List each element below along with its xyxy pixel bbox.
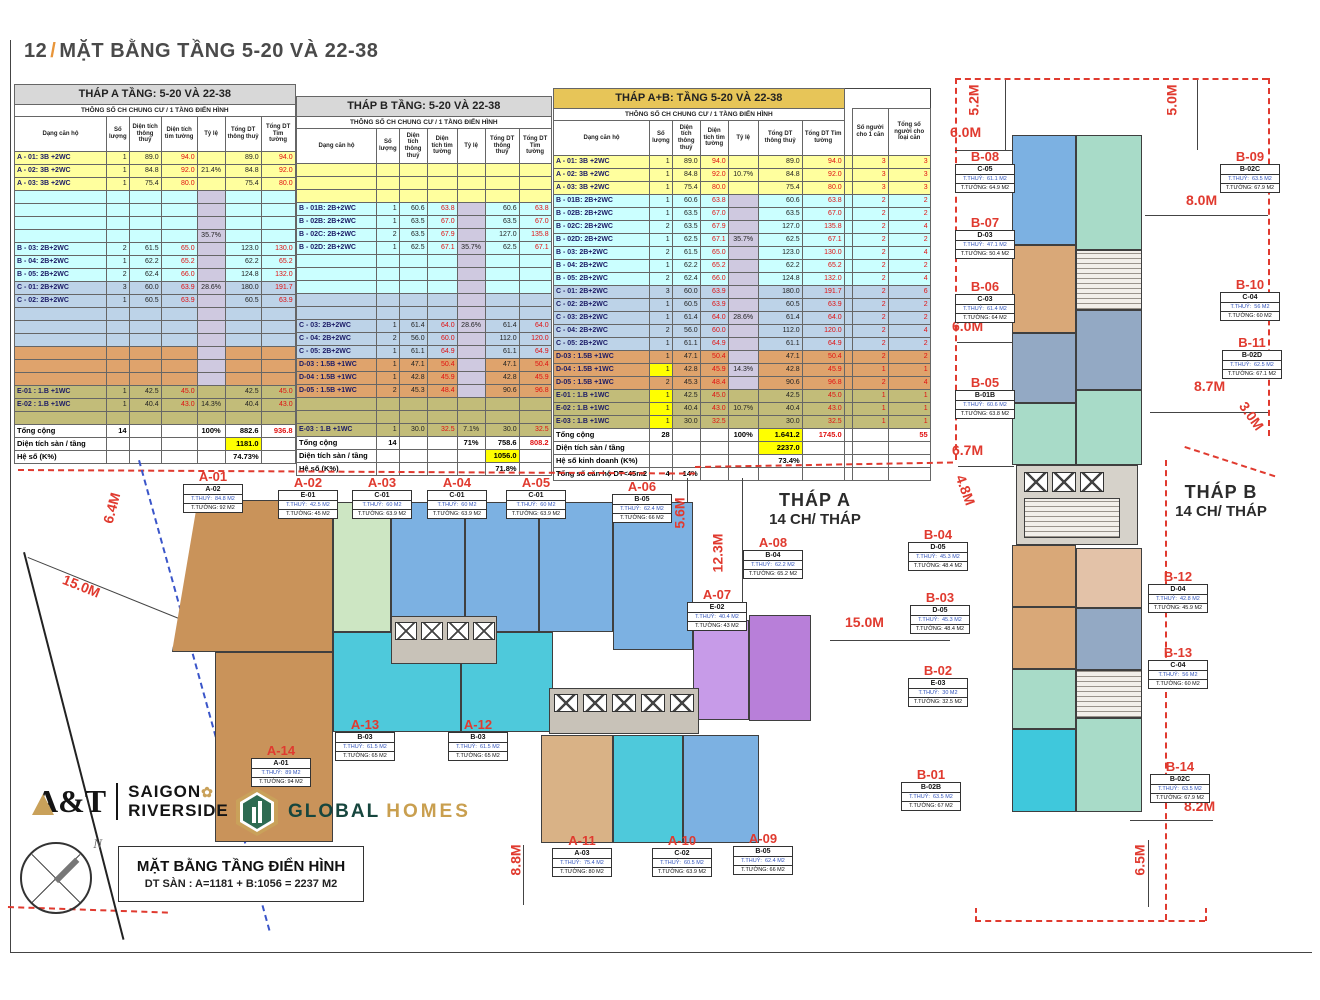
unit-type-code: B-03 [336,733,394,743]
unit-info-box: C-04 T.THUỶ: 56 M2 T.TƯỜNG: 60 M2 [1148,660,1208,689]
unit-label-A-02: A-02 E-01 T.THUỶ: 42.5 M2 T.TƯỜNG: 45 M2 [278,476,338,519]
table-row: D-05 : 1.5B +1WC245.348.490.696.824 [554,377,931,390]
unit-id: B-13 [1148,646,1208,659]
unit-label-B-03: B-03 D-05 T.THUỶ: 45.3 M2 T.TƯỜNG: 48.4 … [910,591,970,634]
column-header: Tỷ lệ [197,117,225,152]
apartment-unit-block [1012,403,1076,465]
unit-type-code: B-05 [734,847,792,857]
unit-label-B-02: B-02 E-03 T.THUỶ: 30 M2 T.TƯỜNG: 32.5 M2 [908,664,968,707]
table-title: THÁP B TẦNG: 5-20 VÀ 22-38 [297,97,552,117]
unit-info-box: C-01 T.THUỶ: 60 M2 T.TƯỜNG: 63.9 M2 [506,490,566,519]
table-row: Tổng cộng1471%758.6808.2 [297,437,552,450]
compass-needle [54,858,79,883]
table-row: C - 04: 2B+2WC256.060.0112.0120.024 [554,325,931,338]
column-header: Dạng căn hộ [554,121,650,156]
global-homes-wordmark: GLOBALHOMES [288,801,471,823]
unit-gross-area: T.TƯỜNG: 66 M2 [613,514,671,522]
table-row: Tổng cộng14100%882.6936.8 [15,425,296,438]
tower-a-label: THÁP A 14 CH/ THÁP [745,490,885,528]
table-row: B - 05: 2B+2WC262.466.0124.8132.024 [554,273,931,286]
elevator-shaft [473,622,495,640]
unit-net-area: T.THUỶ: 62.4 M2 [734,857,792,866]
unit-label-A-13: A-13 B-03 T.THUỶ: 61.5 M2 T.TƯỜNG: 65 M2 [335,718,395,761]
unit-info-box: A-01 T.THUỶ: 89 M2 T.TƯỜNG: 94 M2 [251,758,311,787]
unit-info-box: D-05 T.THUỶ: 45.3 M2 T.TƯỜNG: 48.4 M2 [908,542,968,571]
apartment-unit-block [1076,390,1142,465]
apartment-unit-block [1012,135,1076,245]
dimension-label: 6.5M [1132,844,1148,875]
elevator-shaft [583,694,607,712]
dimension-line [1005,80,1006,150]
table-row: C - 03: 2B+2WC161.464.028.6%61.464.022 [554,312,931,325]
table-row: Diện tích sàn / tầng1056.0 [297,450,552,463]
unit-id: A-04 [427,476,487,489]
apartment-unit-block [1076,310,1142,390]
unit-net-area: T.THUỶ: 60 M2 [428,501,486,510]
unit-label-A-06: A-06 B-05 T.THUỶ: 62.4 M2 T.TƯỜNG: 66 M2 [612,480,672,523]
apartment-unit-block [465,502,539,632]
column-header: Tổng DT Tim tường [802,121,844,156]
unit-gross-area: T.TƯỜNG: 65.2 M2 [744,570,802,578]
unit-net-area: T.THUỶ: 45.3 M2 [911,616,969,625]
table-row [15,373,296,386]
table-row [15,412,296,425]
unit-info-box: B-03 T.THUỶ: 61.5 M2 T.TƯỜNG: 65 M2 [448,732,508,761]
column-header: Diện tích tim tường [700,121,728,156]
stair-core [1076,250,1142,310]
unit-gross-area: T.TƯỜNG: 63.9 M2 [653,868,711,876]
unit-net-area: T.THUỶ: 56 M2 [1221,303,1279,312]
table-row: A - 01: 3B +2WC189.094.089.094.033 [554,156,931,169]
unit-label-B-08: B-08 C-05 T.THUỶ: 61.1 M2 T.TƯỜNG: 64.9 … [955,150,1015,193]
unit-id: A-10 [652,834,712,847]
unit-gross-area: T.TƯỜNG: 66 M2 [734,866,792,874]
unit-type-code: B-02C [1151,775,1209,785]
apartment-unit-block [1012,245,1076,333]
unit-net-area: T.THUỶ: 62.2 M2 [744,561,802,570]
saigon-riverside-wordmark: SAIGON✿ RIVERSIDE [116,783,229,820]
unit-gross-area: T.TƯỜNG: 65 M2 [336,752,394,760]
column-header: Số người cho 1 căn [852,109,888,156]
table-row [297,255,552,268]
unit-net-area: T.THUỶ: 62.4 M2 [613,505,671,514]
north-label: N [93,836,102,852]
page-number: 12 [24,40,47,62]
unit-id: A-12 [448,718,508,731]
table-row [297,294,552,307]
dimension-line [1145,215,1268,216]
unit-net-area: T.THUỶ: 61.5 M2 [336,743,394,752]
dimension-label: 15.0M [60,571,102,600]
apartment-unit-block [1076,608,1142,670]
unit-type-code: C-01 [353,491,411,501]
unit-gross-area: T.TƯỜNG: 67 M2 [902,802,960,810]
data-table: THÁP A TẦNG: 5-20 VÀ 22-38THÔNG SỐ CH CH… [14,84,296,464]
data-table: THÁP A+B: TẦNG 5-20 VÀ 22-38THÔNG SỐ CH … [553,88,931,481]
column-header: Số lượng [107,117,130,152]
apartment-unit-block [1076,135,1142,250]
table-row: D-05 : 1.5B +1WC245.348.490.696.8 [297,385,552,398]
column-header: Tổng DT thông thuỷ [758,121,802,156]
unit-net-area: T.THUỶ: 63.5 M2 [1151,785,1209,794]
unit-net-area: T.THUỶ: 89 M2 [252,769,310,778]
table-row: B - 02D: 2B+2WC162.567.135.7%62.567.122 [554,234,931,247]
unit-info-box: B-01B T.THUỶ: 60.6 M2 T.TƯỜNG: 63.8 M2 [955,390,1015,419]
unit-net-area: T.THUỶ: 63.5 M2 [902,793,960,802]
unit-gross-area: T.TƯỜNG: 67.1 M2 [1223,370,1281,378]
unit-gross-area: T.TƯỜNG: 45 M2 [279,510,337,518]
apartment-unit-block [613,735,683,843]
apartment-unit-block [749,615,811,721]
table-row [297,190,552,203]
unit-info-box: B-05 T.THUỶ: 62.4 M2 T.TƯỜNG: 66 M2 [612,494,672,523]
unit-label-A-14: A-14 A-01 T.THUỶ: 89 M2 T.TƯỜNG: 94 M2 [251,744,311,787]
unit-type-code: A-02 [184,485,242,495]
table-row: B - 01B: 2B+2WC160.663.860.663.8 [297,203,552,216]
site-boundary [1165,460,1167,920]
page-title: 12/MẶT BẰNG TẦNG 5-20 VÀ 22-38 [24,40,378,63]
table-row [297,268,552,281]
apartment-unit-block [1012,333,1076,403]
unit-id: B-14 [1150,760,1210,773]
tower-b-label: THÁP B 14 CH/ THÁP [1146,482,1296,520]
unit-label-B-04: B-04 D-05 T.THUỶ: 45.3 M2 T.TƯỜNG: 48.4 … [908,528,968,571]
slash-mark: / [50,40,56,62]
table-row: C - 02: 2B+2WC160.563.960.563.9 [15,295,296,308]
unit-gross-area: T.TƯỜNG: 63.9 M2 [353,510,411,518]
unit-gross-area: T.TƯỜNG: 63.9 M2 [428,510,486,518]
column-header: Tổng DT Tim tường [261,117,295,152]
unit-id: A-08 [743,536,803,549]
at-logo-mark: A&T [35,783,106,820]
column-header: Dạng căn hộ [297,129,377,164]
hexagon-building-icon [236,788,278,836]
column-header: Tỷ lệ [728,121,758,156]
table-row [297,177,552,190]
dimension-label: 15.0M [845,614,884,630]
dimension-label: 6.7M [952,442,983,458]
table-row: 35.7% [15,230,296,243]
site-boundary [955,78,1268,80]
dimension-line [1130,820,1213,821]
unit-info-box: E-02 T.THUỶ: 40.4 M2 T.TƯỜNG: 43 M2 [687,602,747,631]
table-row [15,360,296,373]
unit-net-area: T.THUỶ: 62.5 M2 [1223,361,1281,370]
column-header: Dạng căn hộ [15,117,107,152]
unit-type-code: C-05 [956,165,1014,175]
apartment-unit-block [693,620,749,720]
table-row: E-01 : 1.B +1WC142.545.042.545.011 [554,390,931,403]
unit-gross-area: T.TƯỜNG: 63.9 M2 [507,510,565,518]
unit-info-box: A-03 T.THUỶ: 75.4 M2 T.TƯỜNG: 80 M2 [552,848,612,877]
table-row [297,398,552,411]
unit-label-B-13: B-13 C-04 T.THUỶ: 56 M2 T.TƯỜNG: 60 M2 [1148,646,1208,689]
unit-net-area: T.THUỶ: 75.4 M2 [553,859,611,868]
elevator-shaft [421,622,443,640]
unit-type-code: E-02 [688,603,746,613]
column-header: Tổng số người cho loại căn [888,109,930,156]
column-header: Diện tích thông thuỷ [399,129,427,164]
unit-info-box: D-05 T.THUỶ: 45.3 M2 T.TƯỜNG: 48.4 M2 [910,605,970,634]
unit-net-area: T.THUỶ: 60.5 M2 [653,859,711,868]
unit-gross-area: T.TƯỜNG: 80 M2 [553,868,611,876]
unit-gross-area: T.TƯỜNG: 63.8 M2 [956,410,1014,418]
unit-type-code: B-02D [1223,351,1281,361]
title-block-heading: MẶT BẰNG TẦNG ĐIỂN HÌNH [137,858,345,875]
table-subtitle: THÔNG SỐ CH CHUNG CƯ / 1 TẦNG ĐIỂN HÌNH [15,105,296,117]
unit-gross-area: T.TƯỜNG: 48.4 M2 [911,625,969,633]
table-row: D-04 : 1.5B +1WC142.845.914.3%42.845.911 [554,364,931,377]
table-row: B - 02D: 2B+2WC162.567.135.7%62.567.1 [297,242,552,255]
unit-gross-area: T.TƯỜNG: 60 M2 [1221,312,1279,320]
unit-info-box: D-03 T.THUỶ: 47.1 M2 T.TƯỜNG: 50.4 M2 [955,230,1015,259]
unit-id: B-10 [1220,278,1280,291]
table-row: B - 02B: 2B+2WC163.567.063.567.022 [554,208,931,221]
table-row [297,281,552,294]
column-header: Tổng DT thông thuỷ [225,117,261,152]
elevator-shaft [554,694,578,712]
unit-net-area: T.THUỶ: 42.8 M2 [1149,595,1207,604]
unit-label-A-05: A-05 C-01 T.THUỶ: 60 M2 T.TƯỜNG: 63.9 M2 [506,476,566,519]
unit-gross-area: T.TƯỜNG: 32.5 M2 [909,698,967,706]
elevator-shaft [447,622,469,640]
unit-info-box: C-04 T.THUỶ: 56 M2 T.TƯỜNG: 60 M2 [1220,292,1280,321]
table-row: B - 04: 2B+2WC162.265.262.265.222 [554,260,931,273]
unit-type-code: C-04 [1221,293,1279,303]
unit-id: B-06 [955,280,1015,293]
gold-triangle-icon [32,794,54,815]
table-row: B - 03: 2B+2WC261.565.0123.0130.0 [15,243,296,256]
unit-type-code: E-01 [279,491,337,501]
table-row: E-03 : 1.B +1WC130.032.57.1%30.032.5 [297,424,552,437]
table-subtitle: THÔNG SỐ CH CHUNG CƯ / 1 TẦNG ĐIỂN HÌNH [554,109,845,121]
dimension-label: 6.4M [100,491,124,525]
dimension-label: 12.3M [709,534,725,573]
unit-info-box: B-02B T.THUỶ: 63.5 M2 T.TƯỜNG: 67 M2 [901,782,961,811]
unit-label-A-10: A-10 C-02 T.THUỶ: 60.5 M2 T.TƯỜNG: 63.9 … [652,834,712,877]
unit-info-box: C-03 T.THUỶ: 61.4 M2 T.TƯỜNG: 64 M2 [955,294,1015,323]
unit-gross-area: T.TƯỜNG: 43 M2 [688,622,746,630]
unit-label-A-11: A-11 A-03 T.THUỶ: 75.4 M2 T.TƯỜNG: 80 M2 [552,834,612,877]
table-row: C - 01: 2B+2WC360.063.928.6%180.0191.7 [15,282,296,295]
table-row: E-03 : 1.B +1WC130.032.530.032.511 [554,416,931,429]
unit-gross-area: T.TƯỜNG: 64.9 M2 [956,184,1014,192]
stair-core [1024,498,1120,538]
dimension-label: 5.0M [1164,84,1180,115]
table-row: B - 05: 2B+2WC262.466.0124.8132.0 [15,269,296,282]
unit-id: A-13 [335,718,395,731]
unit-net-area: T.THUỶ: 61.5 M2 [449,743,507,752]
table-row [15,347,296,360]
site-boundary [1268,78,1270,436]
table-row: Diện tích sàn / tầng1181.0 [15,438,296,451]
unit-label-B-09: B-09 B-02C T.THUỶ: 63.5 M2 T.TƯỜNG: 67.9… [1220,150,1280,193]
table-row: A - 02: 3B +2WC184.892.010.7%84.892.033 [554,169,931,182]
sheet-border-bottom [10,952,1312,953]
table-row: D-03 : 1.5B +1WC147.150.447.150.4 [297,359,552,372]
apartment-unit-block [539,502,613,632]
unit-type-code: D-04 [1149,585,1207,595]
unit-info-box: B-05 T.THUỶ: 62.4 M2 T.TƯỜNG: 66 M2 [733,846,793,875]
dimension-label: 8.7M [1194,378,1225,394]
table-row: B - 02C: 2B+2WC263.567.9127.0135.8 [297,229,552,242]
dimension-label: 8.0M [1186,192,1217,208]
unit-gross-area: T.TƯỜNG: 48.4 M2 [909,562,967,570]
table-row: C - 02: 2B+2WC160.563.960.563.922 [554,299,931,312]
dimension-label: 4.8M [953,473,979,508]
unit-id: B-09 [1220,150,1280,163]
column-header: Tổng DT thông thuỷ [485,129,519,164]
elevator-shaft [1052,472,1076,492]
table-row [297,307,552,320]
unit-label-A-04: A-04 C-01 T.THUỶ: 60 M2 T.TƯỜNG: 63.9 M2 [427,476,487,519]
table-row: C - 05: 2B+2WC161.164.961.164.922 [554,338,931,351]
site-boundary [1205,908,1207,921]
unit-net-area: T.THUỶ: 61.1 M2 [956,175,1014,184]
apartment-unit-block [1012,607,1076,669]
elevator-shaft [1080,472,1104,492]
apartment-unit-block [1012,545,1076,607]
title-block-area: DT SÀN : A=1181 + B:1056 = 2237 M2 [145,878,338,890]
dimension-label: 5.2M [966,84,982,115]
unit-net-area: T.THUỶ: 60 M2 [353,501,411,510]
unit-id: B-07 [955,216,1015,229]
elevator-shaft [1024,472,1048,492]
unit-info-box: B-02C T.THUỶ: 63.5 M2 T.TƯỜNG: 67.9 M2 [1220,164,1280,193]
unit-id: A-03 [352,476,412,489]
unit-info-box: B-03 T.THUỶ: 61.5 M2 T.TƯỜNG: 65 M2 [335,732,395,761]
unit-label-B-11: B-11 B-02D T.THUỶ: 62.5 M2 T.TƯỜNG: 67.1… [1222,336,1282,379]
unit-net-area: T.THUỶ: 60 M2 [507,501,565,510]
unit-type-code: B-04 [744,551,802,561]
unit-type-code: A-03 [553,849,611,859]
unit-info-box: B-02C T.THUỶ: 63.5 M2 T.TƯỜNG: 67.9 M2 [1150,774,1210,803]
apartment-unit-block [333,502,391,632]
table-row [15,334,296,347]
column-header: Diện tích tim tường [427,129,457,164]
at-saigon-riverside-logo: A&T SAIGON✿ RIVERSIDE [35,783,229,820]
unit-type-code: D-03 [956,231,1014,241]
table-row: C - 03: 2B+2WC161.464.028.6%61.464.0 [297,320,552,333]
unit-type-code: C-03 [956,295,1014,305]
flower-icon: ✿ [201,784,214,800]
column-header: Số lượng [377,129,400,164]
unit-id: A-09 [733,832,793,845]
dimension-label: 3.0M [1236,399,1267,434]
table-row: B - 04: 2B+2WC162.265.262.265.2 [15,256,296,269]
apartment-unit-block [541,735,613,843]
table-row: C - 01: 2B+2WC360.063.9180.0191.726 [554,286,931,299]
unit-label-B-12: B-12 D-04 T.THUỶ: 42.8 M2 T.TƯỜNG: 45.9 … [1148,570,1208,613]
table-title: THÁP A TẦNG: 5-20 VÀ 22-38 [15,85,296,105]
unit-label-B-06: B-06 C-03 T.THUỶ: 61.4 M2 T.TƯỜNG: 64 M2 [955,280,1015,323]
north-compass-icon: N [20,842,92,914]
unit-net-area: T.THUỶ: 84.8 M2 [184,495,242,504]
unit-label-A-09: A-09 B-05 T.THUỶ: 62.4 M2 T.TƯỜNG: 66 M2 [733,832,793,875]
unit-type-code: B-01B [956,391,1014,401]
unit-type-code: C-01 [507,491,565,501]
unit-info-box: C-05 T.THUỶ: 61.1 M2 T.TƯỜNG: 64.9 M2 [955,164,1015,193]
unit-id: A-02 [278,476,338,489]
drawing-sheet: 12/MẶT BẰNG TẦNG 5-20 VÀ 22-38 THÁP A TẦ… [0,0,1320,1000]
unit-type-code: B-05 [613,495,671,505]
unit-net-area: T.THUỶ: 56 M2 [1149,671,1207,680]
unit-info-box: D-04 T.THUỶ: 42.8 M2 T.TƯỜNG: 45.9 M2 [1148,584,1208,613]
unit-id: A-14 [251,744,311,757]
table-row: D-04 : 1.5B +1WC142.845.942.845.9 [297,372,552,385]
apartment-unit-block [683,735,759,843]
table-row: C - 05: 2B+2WC161.164.961.164.9 [297,346,552,359]
unit-label-B-01: B-01 B-02B T.THUỶ: 63.5 M2 T.TƯỜNG: 67 M… [901,768,961,811]
unit-id: B-02 [908,664,968,677]
unit-gross-area: T.TƯỜNG: 92 M2 [184,504,242,512]
unit-id: A-07 [687,588,747,601]
unit-label-A-12: A-12 B-03 T.THUỶ: 61.5 M2 T.TƯỜNG: 65 M2 [448,718,508,761]
unit-net-area: T.THUỶ: 45.3 M2 [909,553,967,562]
column-header: Diện tích tim tường [161,117,197,152]
unit-id: A-05 [506,476,566,489]
table-row [15,217,296,230]
unit-gross-area: T.TƯỜNG: 45.9 M2 [1149,604,1207,612]
table-row: B - 03: 2B+2WC261.565.0123.0130.024 [554,247,931,260]
dimension-line [957,342,1012,343]
unit-info-box: E-01 T.THUỶ: 42.5 M2 T.TƯỜNG: 45 M2 [278,490,338,519]
site-boundary [8,906,168,914]
table-row: B - 02C: 2B+2WC263.567.9127.0135.824 [554,221,931,234]
column-header: Tỷ lệ [457,129,485,164]
unit-id: A-11 [552,834,612,847]
unit-type-code: E-03 [909,679,967,689]
unit-id: B-11 [1222,336,1282,349]
table-row [15,191,296,204]
table-row [297,164,552,177]
unit-gross-area: T.TƯỜNG: 60 M2 [1149,680,1207,688]
unit-net-area: T.THUỶ: 60.6 M2 [956,401,1014,410]
table-row: A - 01: 3B +2WC189.094.089.094.0 [15,152,296,165]
table-row: B - 01B: 2B+2WC160.663.860.663.822 [554,195,931,208]
column-header: Diện tích thông thuỷ [129,117,161,152]
unit-info-box: C-02 T.THUỶ: 60.5 M2 T.TƯỜNG: 63.9 M2 [652,848,712,877]
unit-net-area: T.THUỶ: 42.5 M2 [279,501,337,510]
table-row [15,204,296,217]
site-boundary [975,908,977,921]
unit-net-area: T.THUỶ: 47.1 M2 [956,241,1014,250]
unit-id: B-12 [1148,570,1208,583]
table-row: A - 03: 3B +2WC175.480.075.480.033 [554,182,931,195]
unit-gross-area: T.TƯỜNG: 94 M2 [252,778,310,786]
apartment-unit-block [1012,729,1076,812]
unit-gross-area: T.TƯỜNG: 65 M2 [449,752,507,760]
table-row: Diện tích sàn / tầng2237.0 [554,442,931,455]
unit-label-A-07: A-07 E-02 T.THUỶ: 40.4 M2 T.TƯỜNG: 43 M2 [687,588,747,631]
table-row: A - 03: 3B +2WC175.480.075.480.0 [15,178,296,191]
unit-type-code: C-02 [653,849,711,859]
table-row: Tổng cộng28100%1.641.21745.055 [554,429,931,442]
unit-id: B-08 [955,150,1015,163]
unit-gross-area: T.TƯỜNG: 67.9 M2 [1151,794,1209,802]
unit-type-code: B-02B [902,783,960,793]
sheet-border-left [10,40,11,952]
table-row [15,308,296,321]
unit-label-B-14: B-14 B-02C T.THUỶ: 63.5 M2 T.TƯỜNG: 67.9… [1150,760,1210,803]
elevator-shaft [395,622,417,640]
table-row: C - 04: 2B+2WC256.060.0112.0120.0 [297,333,552,346]
unit-gross-area: T.TƯỜNG: 50.4 M2 [956,250,1014,258]
column-header: Số lượng [650,121,673,156]
elevator-shaft [612,694,636,712]
dimension-line [1148,840,1149,907]
data-table: THÁP B TẦNG: 5-20 VÀ 22-38THÔNG SỐ CH CH… [296,96,552,476]
